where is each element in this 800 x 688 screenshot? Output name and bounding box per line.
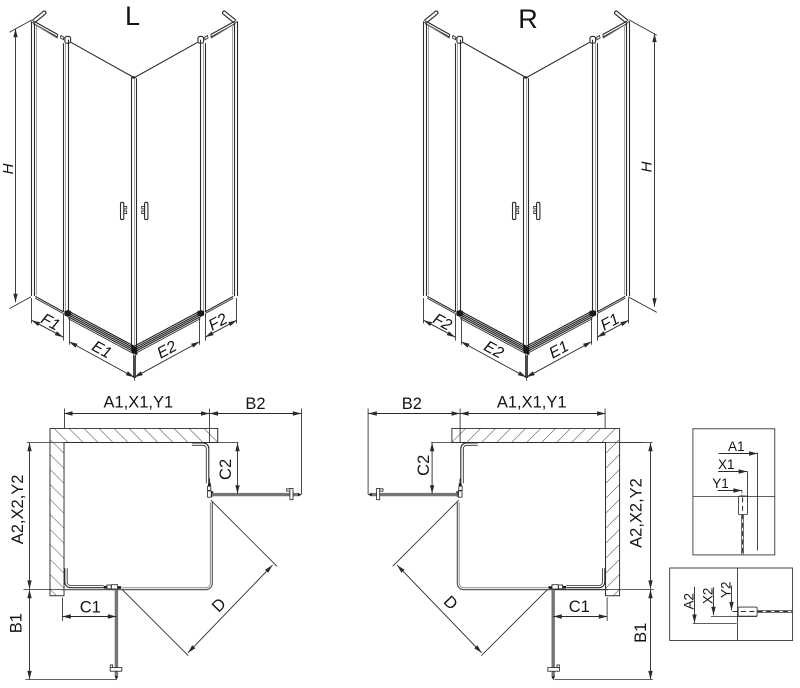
svg-text:R: R — [518, 4, 538, 34]
svg-text:X1: X1 — [718, 457, 735, 472]
svg-text:B1: B1 — [632, 623, 650, 643]
svg-text:C1: C1 — [569, 598, 590, 616]
svg-text:B2: B2 — [402, 395, 422, 413]
svg-text:L: L — [125, 1, 140, 31]
svg-text:H: H — [0, 163, 17, 174]
svg-text:A1: A1 — [728, 439, 745, 454]
svg-text:Y2: Y2 — [719, 581, 734, 598]
svg-text:C1: C1 — [80, 598, 101, 616]
svg-text:Y1: Y1 — [712, 476, 729, 491]
svg-text:A2,X2,Y2: A2,X2,Y2 — [627, 478, 645, 548]
svg-text:B1: B1 — [8, 613, 26, 633]
svg-text:C2: C2 — [415, 455, 433, 476]
svg-text:A2: A2 — [681, 593, 696, 610]
svg-text:C2: C2 — [217, 459, 235, 480]
svg-text:X2: X2 — [700, 588, 715, 605]
svg-text:A1,X1,Y1: A1,X1,Y1 — [497, 394, 567, 412]
svg-text:A1,X1,Y1: A1,X1,Y1 — [103, 394, 173, 412]
svg-text:H: H — [638, 161, 655, 172]
svg-text:B2: B2 — [245, 395, 265, 413]
svg-text:A2,X2,Y2: A2,X2,Y2 — [9, 475, 27, 545]
